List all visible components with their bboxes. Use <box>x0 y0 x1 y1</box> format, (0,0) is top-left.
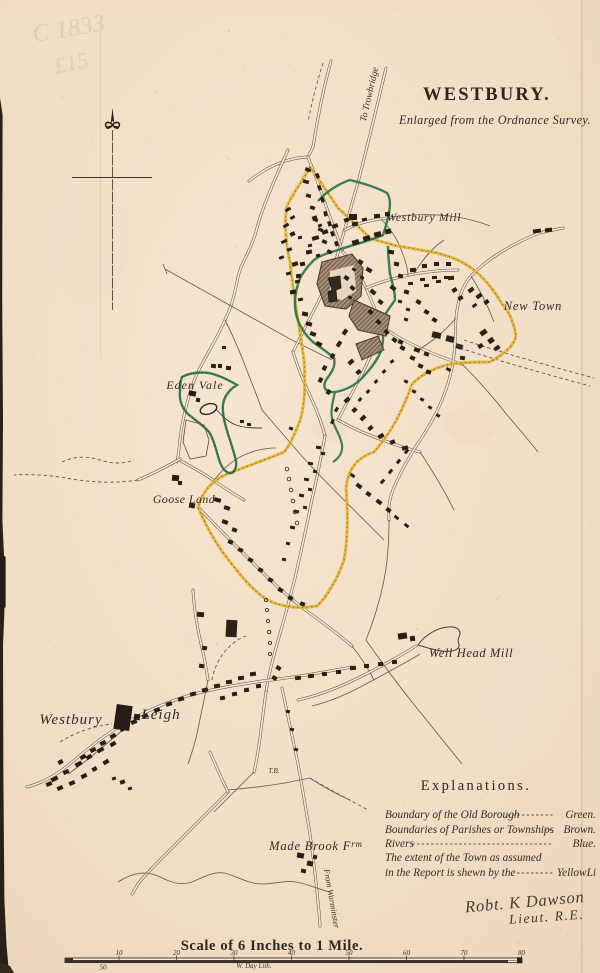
svg-text:Made Brook Frm: Made Brook Frm <box>268 839 363 853</box>
svg-text:40: 40 <box>288 949 296 957</box>
svg-text:Brown.: Brown. <box>563 824 596 836</box>
svg-text:Scale of 6 Inches to 1 Mile.: Scale of 6 Inches to 1 Mile. <box>181 938 364 954</box>
svg-text:Boundary of the Old Borough: Boundary of the Old Borough <box>385 809 520 821</box>
svg-text:New Town: New Town <box>503 299 562 313</box>
svg-text:Well Head Mill: Well Head Mill <box>429 646 513 660</box>
svg-text:Boundaries of Parishes or Town: Boundaries of Parishes or Townships <box>385 824 555 836</box>
svg-text:W. Day Lith.: W. Day Lith. <box>236 962 271 970</box>
svg-text:60: 60 <box>403 949 411 957</box>
svg-text:10: 10 <box>116 949 124 957</box>
svg-text:70: 70 <box>461 949 469 957</box>
svg-text:YellowLi: YellowLi <box>557 867 596 879</box>
svg-text:The extent of the Town as assu: The extent of the Town as assumed <box>385 852 542 864</box>
svg-text:Enlarged from the Ordnance Sur: Enlarged from the Ordnance Survey. <box>398 113 591 127</box>
svg-text:30: 30 <box>230 949 239 957</box>
svg-text:Westbury Mill: Westbury Mill <box>387 212 462 224</box>
svg-text:T.B.: T.B. <box>268 767 279 775</box>
svg-text:50: 50 <box>346 949 354 957</box>
svg-text:Leigh: Leigh <box>140 707 180 723</box>
svg-text:Blue.: Blue. <box>572 838 596 850</box>
svg-text:Goose Land: Goose Land <box>153 492 215 506</box>
svg-text:Rivers: Rivers <box>384 838 414 850</box>
svg-text:WESTBURY.: WESTBURY. <box>423 85 551 105</box>
svg-text:80: 80 <box>518 949 526 957</box>
svg-text:Westbury: Westbury <box>39 712 102 728</box>
svg-text:50: 50 <box>100 964 108 972</box>
svg-text:Green.: Green. <box>565 809 596 821</box>
svg-text:in the Report is shewn by the: in the Report is shewn by the <box>385 867 516 879</box>
svg-text:20: 20 <box>173 949 181 957</box>
svg-text:Explanations.: Explanations. <box>421 778 532 794</box>
svg-text:Eden Vale: Eden Vale <box>165 378 223 392</box>
